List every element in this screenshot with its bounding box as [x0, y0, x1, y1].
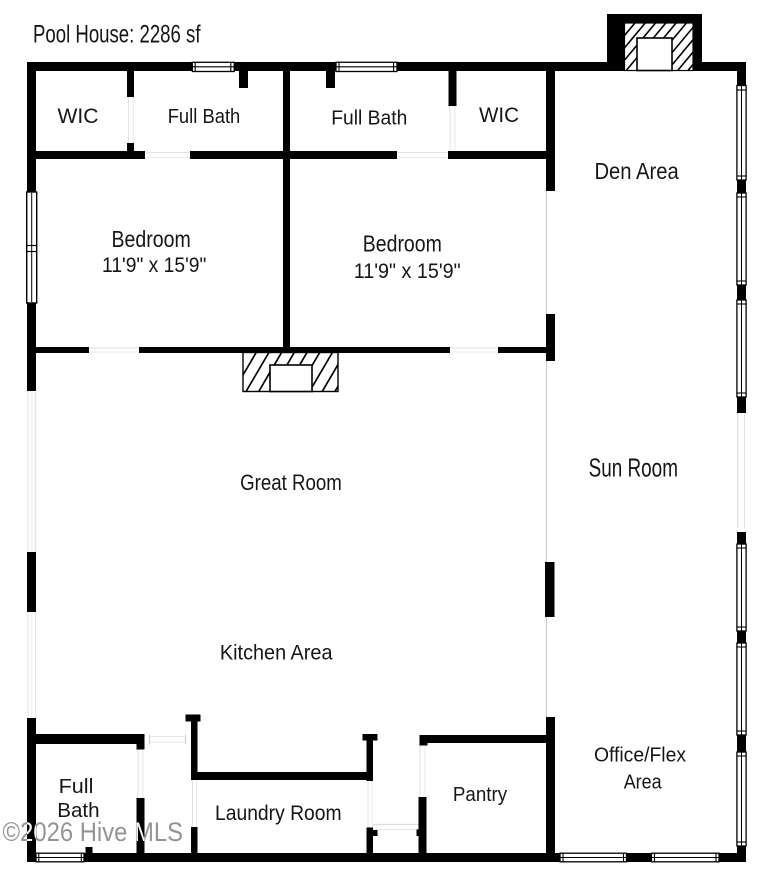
svg-text:Laundry Room: Laundry Room — [215, 802, 342, 825]
svg-text:Area: Area — [624, 771, 663, 794]
svg-text:Office/Flex: Office/Flex — [594, 744, 687, 767]
svg-text:WIC: WIC — [58, 105, 99, 128]
svg-text:Great Room: Great Room — [240, 470, 342, 495]
svg-text:Bedroom: Bedroom — [363, 230, 442, 256]
svg-text:Pantry: Pantry — [453, 783, 508, 806]
svg-text:Bedroom: Bedroom — [112, 226, 191, 252]
svg-text:Sun Room: Sun Room — [589, 453, 678, 483]
svg-text:Den Area: Den Area — [594, 158, 678, 184]
svg-text:Full Bath: Full Bath — [331, 107, 407, 130]
svg-text:Pool House: 2286 sf: Pool House: 2286 sf — [33, 21, 201, 49]
svg-text:Kitchen Area: Kitchen Area — [220, 641, 333, 665]
svg-text:WIC: WIC — [479, 104, 519, 127]
svg-text:Full Bath: Full Bath — [168, 105, 241, 128]
svg-text:11'9" x 15'9": 11'9" x 15'9" — [354, 260, 461, 283]
svg-text:Full: Full — [59, 775, 94, 798]
svg-text:11'9" x 15'9": 11'9" x 15'9" — [102, 254, 206, 277]
